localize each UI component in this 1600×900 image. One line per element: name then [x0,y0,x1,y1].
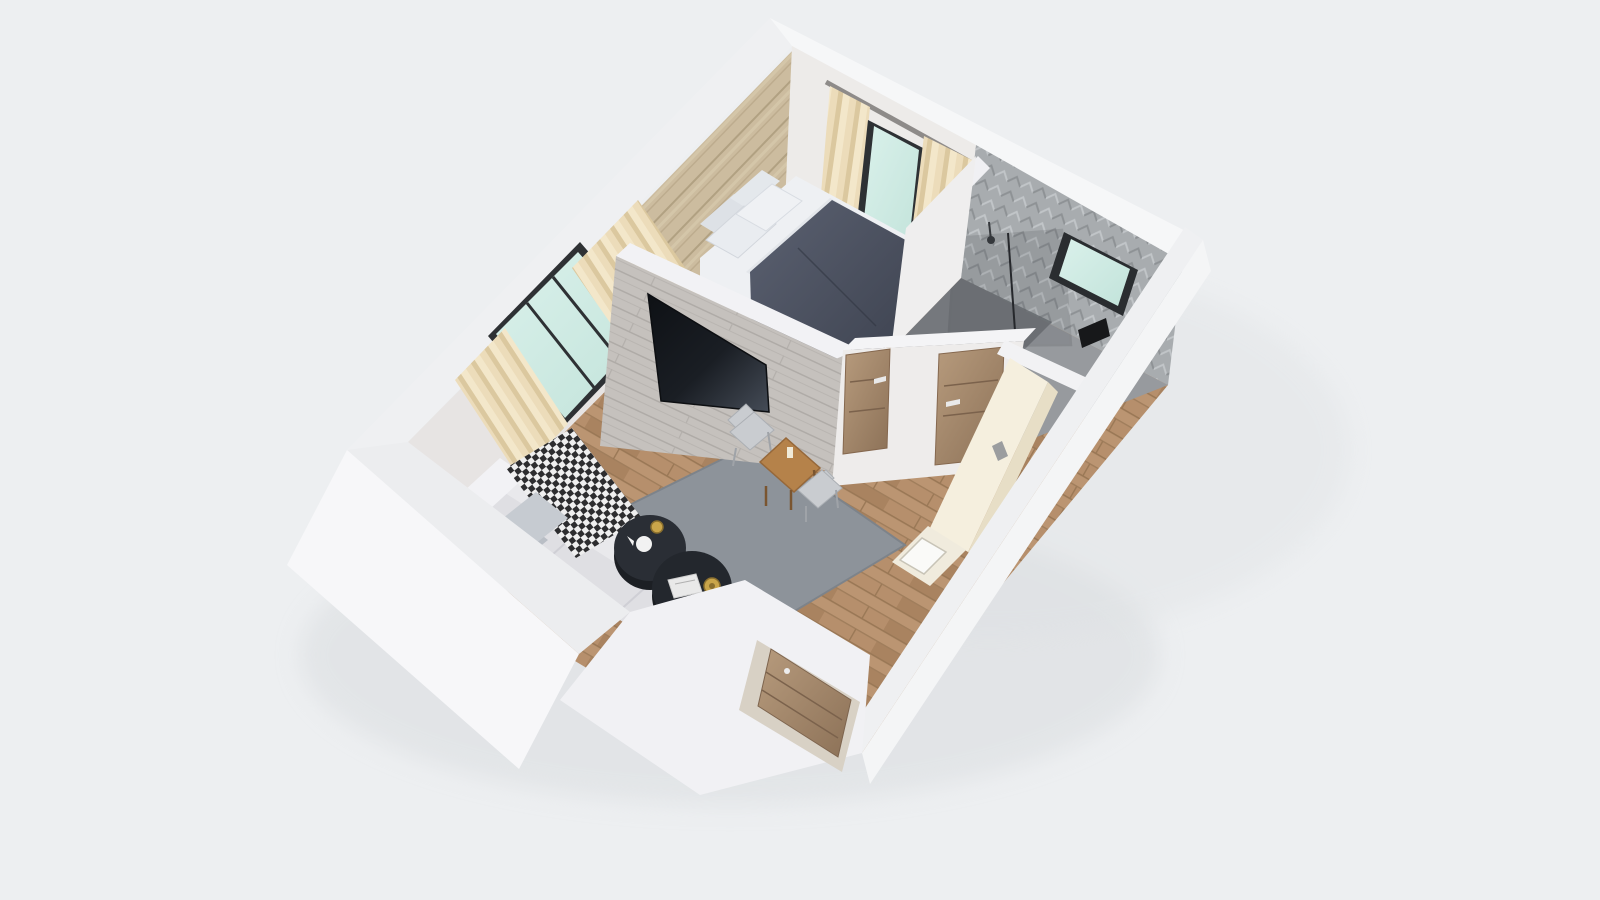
candle [787,447,793,458]
gold-dish-center [709,583,715,589]
entry-door-handle [784,668,790,674]
floorplan-canvas [0,0,1600,900]
bedroom-door [843,349,890,454]
apartment-scene [0,0,1600,900]
gold-bowl [651,521,663,533]
teapot [636,536,652,552]
floorplan-render [0,0,1600,900]
